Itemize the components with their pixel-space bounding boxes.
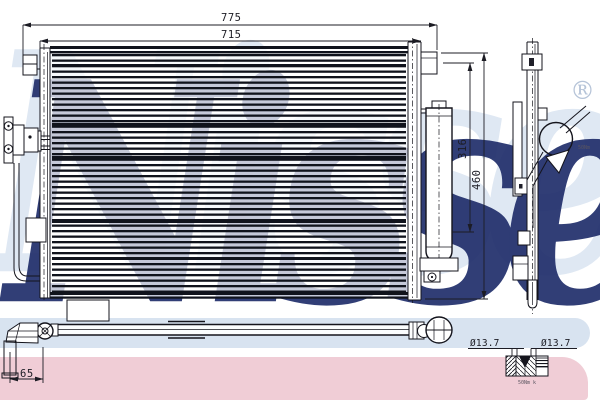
side-bottom-tube (528, 280, 537, 308)
side-bracket-mid (518, 231, 530, 245)
overall-width-label: 775 (221, 12, 241, 24)
port-diameter-right-label: Ø13.7 (541, 338, 571, 349)
pipe-right-flange (409, 317, 452, 343)
right-tank (408, 38, 421, 303)
detail-fitting-note: 50Nm k (518, 380, 536, 386)
condenser-core (50, 46, 408, 299)
total-height-label: 460 (471, 170, 483, 190)
port-diameter-left-label: Ø13.7 (470, 338, 500, 349)
bottom-foot-bracket (67, 300, 109, 321)
side-fitting-note: 50Nm (578, 145, 590, 151)
pipe-left-joint (37, 323, 58, 339)
condenser-technical-drawing: 50Nm (0, 0, 600, 400)
front-view (4, 38, 458, 321)
core-width-label: 715 (221, 29, 241, 41)
receiver-drier (420, 101, 458, 282)
top-left-bracket (23, 55, 40, 75)
technical-drawing-page: { "watermark": { "brand": "Nissens", "re… (0, 0, 600, 400)
side-block-lower (513, 256, 528, 280)
side-right-tab (538, 108, 547, 120)
port-detail: Ø13.7 Ø13.7 50Nm k (468, 338, 577, 386)
side-view: 50Nm (513, 38, 590, 314)
bottom-view (2, 317, 452, 378)
top-right-bracket (421, 52, 437, 74)
upper-height-label: 316 (457, 139, 469, 159)
pipe-offset-label: 65 (20, 368, 34, 380)
